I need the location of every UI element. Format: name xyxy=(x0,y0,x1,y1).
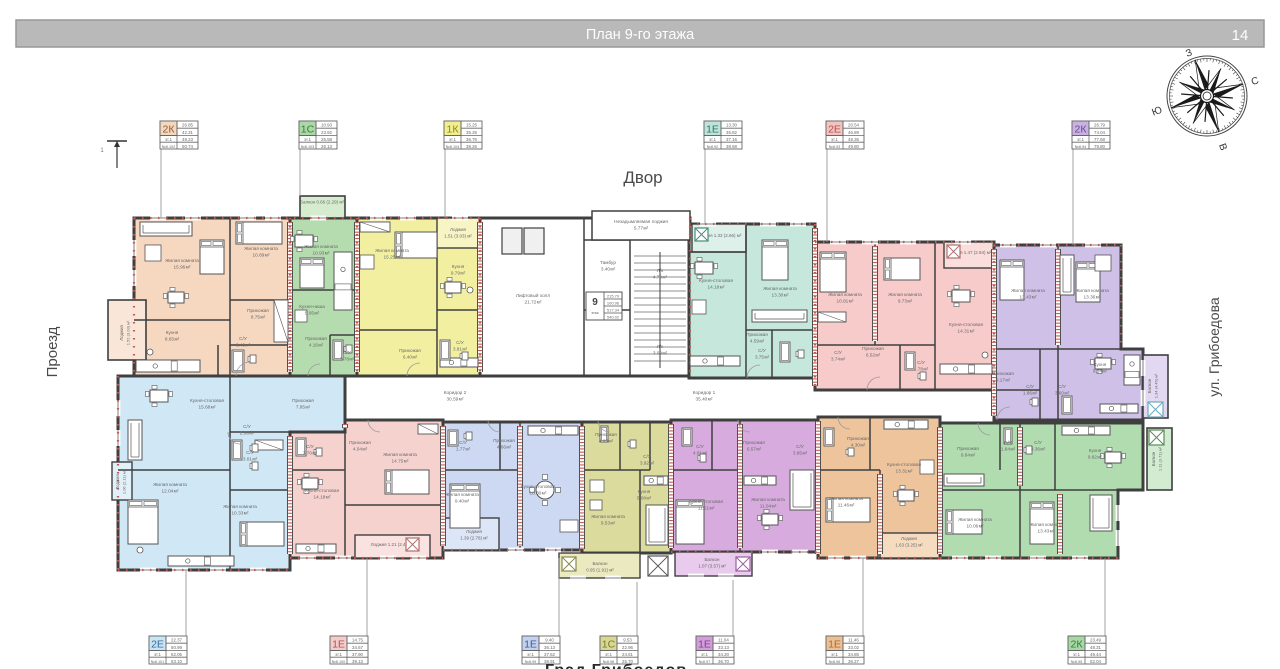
svg-text:Кухня-столовая: Кухня-столовая xyxy=(190,398,224,403)
svg-text:Л/к: Л/к xyxy=(657,344,664,349)
svg-text:Балкон: Балкон xyxy=(1147,378,1152,393)
svg-text:48.36: 48.36 xyxy=(848,137,860,142)
svg-text:22.37: 22.37 xyxy=(171,638,183,643)
svg-text:этаж: этаж xyxy=(591,311,599,315)
svg-text:Кухня: Кухня xyxy=(1094,362,1107,367)
svg-text:Лоджия: Лоджия xyxy=(466,529,483,534)
svg-text:9.17 м²: 9.17 м² xyxy=(996,378,1011,383)
svg-text:38.26: 38.26 xyxy=(466,144,478,149)
svg-text:23.49: 23.49 xyxy=(1090,638,1102,643)
svg-text:эт.1: эт.1 xyxy=(335,652,343,657)
svg-text:План 9-го этажа: План 9-го этажа xyxy=(586,27,695,43)
svg-text:49.44: 49.44 xyxy=(1090,652,1102,657)
svg-text:4.01 м²: 4.01 м² xyxy=(693,451,708,456)
svg-text:Балкон: Балкон xyxy=(1151,451,1156,466)
svg-text:Прихожая: Прихожая xyxy=(743,440,765,445)
svg-text:С/У: С/У xyxy=(459,440,467,445)
svg-text:эт.1: эт.1 xyxy=(605,652,613,657)
svg-text:Прихожая: Прихожая xyxy=(992,371,1014,376)
svg-text:11.04 м²: 11.04 м² xyxy=(760,504,777,509)
svg-text:№8.97: №8.97 xyxy=(699,660,710,664)
svg-text:Прихожая: Прихожая xyxy=(493,438,515,443)
svg-text:15.25: 15.25 xyxy=(466,123,478,128)
svg-text:1.39 (2.78) м²: 1.39 (2.78) м² xyxy=(460,536,488,541)
svg-text:20.54: 20.54 xyxy=(848,123,860,128)
svg-text:4.66 м²: 4.66 м² xyxy=(497,445,512,450)
svg-text:Прихожая: Прихожая xyxy=(247,308,269,313)
svg-text:Прихожая: Прихожая xyxy=(399,348,421,353)
svg-text:52.04: 52.04 xyxy=(1090,659,1102,664)
svg-text:50.99: 50.99 xyxy=(171,645,183,650)
svg-text:14.75: 14.75 xyxy=(352,638,364,643)
svg-text:9.40: 9.40 xyxy=(545,638,554,643)
svg-text:№8.103: №8.103 xyxy=(301,145,315,149)
svg-text:11.51 м²: 11.51 м² xyxy=(698,506,715,511)
svg-text:Жилая комната: Жилая комната xyxy=(244,246,278,251)
svg-text:Кухня-столовая: Кухня-столовая xyxy=(699,278,733,283)
svg-text:Жилая комната: Жилая комната xyxy=(763,286,797,291)
svg-text:Кухня: Кухня xyxy=(452,264,465,269)
svg-text:35.25: 35.25 xyxy=(466,130,478,135)
svg-text:77.68: 77.68 xyxy=(1094,137,1106,142)
svg-text:3.81 м²: 3.81 м² xyxy=(453,347,468,352)
svg-text:Коридор 1: Коридор 1 xyxy=(693,390,716,395)
svg-text:10.93: 10.93 xyxy=(321,123,333,128)
svg-text:Прихожая: Прихожая xyxy=(862,346,884,351)
svg-text:37.16: 37.16 xyxy=(726,137,738,142)
svg-text:215.70: 215.70 xyxy=(607,294,620,299)
svg-text:Жилая комната: Жилая комната xyxy=(375,248,409,253)
svg-text:С/У: С/У xyxy=(1058,384,1066,389)
svg-text:25.58: 25.58 xyxy=(321,137,333,142)
svg-text:4.70 м²: 4.70 м² xyxy=(653,275,668,280)
svg-text:Кухня: Кухня xyxy=(166,330,179,335)
svg-text:Кухня-столовая: Кухня-столовая xyxy=(305,488,339,493)
svg-text:Прихожая: Прихожая xyxy=(292,398,314,403)
svg-text:36.13: 36.13 xyxy=(544,645,556,650)
svg-text:Град Грибоедов: Град Грибоедов xyxy=(545,662,687,669)
svg-text:13.36 м²: 13.36 м² xyxy=(1084,295,1101,300)
svg-text:Жилая комната: Жилая комната xyxy=(383,452,417,457)
svg-text:3.46 м²: 3.46 м² xyxy=(236,343,251,348)
svg-text:13.30 м²: 13.30 м² xyxy=(772,293,789,298)
svg-text:9.53: 9.53 xyxy=(623,638,632,643)
svg-text:3.70 м²: 3.70 м² xyxy=(303,451,318,456)
svg-text:79.80: 79.80 xyxy=(1094,144,1106,149)
svg-text:2К: 2К xyxy=(163,124,176,136)
svg-text:14.31 м²: 14.31 м² xyxy=(958,329,975,334)
svg-text:№8.104: №8.104 xyxy=(446,145,460,149)
svg-text:Лоджия: Лоджия xyxy=(901,536,918,541)
svg-text:74.04: 74.04 xyxy=(1094,130,1106,135)
svg-text:10.89 м²: 10.89 м² xyxy=(253,253,270,258)
svg-text:С/У: С/У xyxy=(1034,440,1042,445)
svg-text:С/У: С/У xyxy=(917,360,925,365)
svg-text:С/У: С/У xyxy=(834,350,842,355)
svg-text:эт.1: эт.1 xyxy=(1077,137,1085,142)
svg-text:5.08 м²: 5.08 м² xyxy=(637,496,652,501)
svg-text:10.81 м²: 10.81 м² xyxy=(837,299,854,304)
svg-text:9.40 м²: 9.40 м² xyxy=(455,499,470,504)
svg-text:3.36 м²: 3.36 м² xyxy=(1031,447,1046,452)
svg-text:26.13: 26.13 xyxy=(321,144,333,149)
svg-text:3.92 м²: 3.92 м² xyxy=(640,461,655,466)
svg-text:39.13: 39.13 xyxy=(352,659,364,664)
svg-text:1.86 м²: 1.86 м² xyxy=(1023,391,1038,396)
svg-text:1Е: 1Е xyxy=(524,639,537,651)
svg-text:26.85: 26.85 xyxy=(182,123,194,128)
svg-text:№8.102: №8.102 xyxy=(162,145,176,149)
svg-text:9.14 м²: 9.14 м² xyxy=(1093,369,1108,374)
svg-text:Лоджия: Лоджия xyxy=(119,325,124,341)
svg-text:Жилая комната: Жилая комната xyxy=(958,517,992,522)
svg-text:Жилая комната: Жилая комната xyxy=(153,482,187,487)
svg-text:3.60 м²: 3.60 м² xyxy=(1055,391,1070,396)
svg-text:Лоджия: Лоджия xyxy=(450,227,467,232)
svg-text:48.31: 48.31 xyxy=(1090,645,1102,650)
svg-text:С/У: С/У xyxy=(1004,440,1012,445)
svg-text:6.57 м²: 6.57 м² xyxy=(747,447,762,452)
svg-text:50.74: 50.74 xyxy=(182,144,194,149)
svg-text:36.76: 36.76 xyxy=(466,137,478,142)
svg-text:34.67: 34.67 xyxy=(352,645,364,650)
svg-text:6.40 м²: 6.40 м² xyxy=(403,355,418,360)
svg-text:26.79: 26.79 xyxy=(1094,123,1106,128)
svg-text:эт.1: эт.1 xyxy=(154,652,162,657)
svg-text:46.89: 46.89 xyxy=(848,130,860,135)
svg-text:Жилая комната: Жилая комната xyxy=(165,258,199,263)
svg-text:3.78 м²: 3.78 м² xyxy=(340,357,355,362)
svg-text:1.06 (2.11) м²: 1.06 (2.11) м² xyxy=(122,469,127,494)
svg-text:эт.1: эт.1 xyxy=(701,652,709,657)
svg-text:Кухня-столовая: Кухня-столовая xyxy=(949,322,983,327)
svg-text:эт.1: эт.1 xyxy=(304,137,312,142)
svg-text:35.82: 35.82 xyxy=(726,130,738,135)
svg-text:С/У: С/У xyxy=(243,424,251,429)
svg-text:1С: 1С xyxy=(301,124,315,136)
svg-text:11.46: 11.46 xyxy=(848,638,859,643)
svg-text:Прихожая: Прихожая xyxy=(746,332,768,337)
svg-text:33.02: 33.02 xyxy=(848,645,860,650)
svg-text:3.95 м²: 3.95 м² xyxy=(793,451,808,456)
svg-text:Проезд: Проезд xyxy=(44,326,61,377)
svg-text:Жилая комната: Жилая комната xyxy=(1029,522,1063,527)
svg-text:эт.1: эт.1 xyxy=(165,137,173,142)
svg-text:Прихожая: Прихожая xyxy=(847,436,869,441)
svg-text:Лоджия: Лоджия xyxy=(115,474,120,490)
svg-text:2.08 м²: 2.08 м² xyxy=(240,431,255,436)
svg-text:517.34: 517.34 xyxy=(607,308,620,313)
svg-text:С/У: С/У xyxy=(246,450,254,455)
svg-text:№8.92: №8.92 xyxy=(707,145,718,149)
svg-text:Жилая комната: Жилая комната xyxy=(223,504,257,509)
svg-text:Жилая комната: Жилая комната xyxy=(751,497,785,502)
svg-text:1.84 м²: 1.84 м² xyxy=(1001,447,1016,452)
svg-text:540.02: 540.02 xyxy=(607,315,620,320)
svg-text:22.96: 22.96 xyxy=(622,645,634,650)
svg-text:Прихожая: Прихожая xyxy=(349,440,371,445)
svg-text:10.93 м²: 10.93 м² xyxy=(313,251,330,256)
svg-text:1Е: 1Е xyxy=(706,124,719,136)
svg-text:Жилая комната: Жилая комната xyxy=(445,492,479,497)
svg-text:С/У: С/У xyxy=(643,454,651,459)
svg-text:8.75 м²: 8.75 м² xyxy=(251,315,266,320)
svg-text:53.10: 53.10 xyxy=(171,659,183,664)
svg-text:2Е: 2Е xyxy=(151,639,164,651)
svg-text:1Е: 1Е xyxy=(332,639,345,651)
svg-text:№8.96: №8.96 xyxy=(829,660,840,664)
svg-text:34.20: 34.20 xyxy=(718,652,730,657)
svg-text:Балкон: Балкон xyxy=(704,557,720,562)
svg-text:3.74 м²: 3.74 м² xyxy=(831,357,846,362)
svg-text:14.18 м²: 14.18 м² xyxy=(708,285,725,290)
svg-text:33.13: 33.13 xyxy=(718,645,730,650)
svg-text:5.05 м²: 5.05 м² xyxy=(305,311,320,316)
svg-text:№8.100: №8.100 xyxy=(332,660,346,664)
svg-text:Кухня-ниша: Кухня-ниша xyxy=(299,304,325,309)
svg-text:23.92: 23.92 xyxy=(321,130,333,135)
svg-text:9.73 м²: 9.73 м² xyxy=(898,299,913,304)
svg-text:11.46 м²: 11.46 м² xyxy=(838,503,855,508)
svg-text:49.23: 49.23 xyxy=(182,137,194,142)
svg-text:6.52 м²: 6.52 м² xyxy=(866,353,881,358)
svg-text:1.51 (3.03) м²: 1.51 (3.03) м² xyxy=(444,234,472,239)
svg-text:3.01 м²: 3.01 м² xyxy=(243,457,258,462)
svg-text:4.16 м²: 4.16 м² xyxy=(309,343,324,348)
svg-text:13.30: 13.30 xyxy=(726,123,738,128)
svg-text:эт.1: эт.1 xyxy=(1073,652,1081,657)
svg-text:Л/к: Л/к xyxy=(657,268,664,273)
svg-text:Лифтовый холл: Лифтовый холл xyxy=(516,292,550,298)
svg-text:9.79 м²: 9.79 м² xyxy=(451,271,466,276)
svg-text:1С: 1С xyxy=(602,639,616,651)
svg-text:14: 14 xyxy=(1232,27,1249,44)
svg-text:4.59 м²: 4.59 м² xyxy=(750,339,765,344)
svg-text:18.30 м²: 18.30 м² xyxy=(530,491,547,496)
svg-text:21.72 м²: 21.72 м² xyxy=(525,300,542,305)
svg-text:36.70: 36.70 xyxy=(718,659,730,664)
svg-text:эт.1: эт.1 xyxy=(449,137,457,142)
svg-text:С/У: С/У xyxy=(456,340,464,345)
svg-text:49.80: 49.80 xyxy=(848,144,860,149)
svg-text:Кухня-столовая: Кухня-столовая xyxy=(887,462,921,467)
svg-text:С/У: С/У xyxy=(306,444,314,449)
svg-text:эт.1: эт.1 xyxy=(831,652,839,657)
svg-text:1.34 (4.46) м²: 1.34 (4.46) м² xyxy=(1154,373,1159,398)
svg-text:2К: 2К xyxy=(1071,639,1084,651)
svg-text:Балкон: Балкон xyxy=(592,561,608,566)
svg-text:эт.1: эт.1 xyxy=(831,137,839,142)
svg-text:37.52: 37.52 xyxy=(544,652,556,657)
svg-text:№8.99: №8.99 xyxy=(525,660,536,664)
svg-text:Двор: Двор xyxy=(623,168,662,187)
svg-text:№8.93: №8.93 xyxy=(829,145,840,149)
svg-text:С/У: С/У xyxy=(239,336,247,341)
svg-text:1.11 (3.71) м²: 1.11 (3.71) м² xyxy=(1158,446,1163,471)
svg-text:10.33 м²: 10.33 м² xyxy=(232,511,249,516)
svg-text:Жилая комната: Жилая комната xyxy=(888,292,922,297)
svg-text:Жилая комната: Жилая комната xyxy=(591,514,625,519)
svg-text:24.61: 24.61 xyxy=(622,652,634,657)
svg-text:Жилая комната: Жилая комната xyxy=(1011,288,1045,293)
svg-text:1.52 (3.03) м²: 1.52 (3.03) м² xyxy=(126,320,131,345)
svg-text:1.77 м²: 1.77 м² xyxy=(456,447,471,452)
svg-text:34.85: 34.85 xyxy=(848,652,860,657)
svg-text:Кухня-столовая: Кухня-столовая xyxy=(689,499,723,504)
svg-text:Незадымляемая лоджия: Незадымляемая лоджия xyxy=(614,219,668,224)
svg-text:100.96: 100.96 xyxy=(607,301,620,306)
svg-text:Коридор 2: Коридор 2 xyxy=(444,390,467,395)
svg-text:1К: 1К xyxy=(447,124,460,136)
svg-text:2Е: 2Е xyxy=(828,124,841,136)
svg-text:Прихожая: Прихожая xyxy=(595,432,617,437)
svg-text:С/У: С/У xyxy=(696,444,704,449)
svg-text:ул. Грибоедова: ул. Грибоедова xyxy=(1206,297,1222,397)
svg-text:13.43 м²: 13.43 м² xyxy=(1020,295,1037,300)
svg-text:Балкон 0.66 (2.29) м²: Балкон 0.66 (2.29) м² xyxy=(300,200,344,205)
svg-text:14.75 м²: 14.75 м² xyxy=(392,459,409,464)
svg-text:Тамбур: Тамбур xyxy=(600,260,616,265)
svg-text:3.75 м²: 3.75 м² xyxy=(755,355,770,360)
svg-text:4.03 м²: 4.03 м² xyxy=(599,439,614,444)
svg-text:9.84 м²: 9.84 м² xyxy=(961,453,976,458)
svg-text:Жилая комната: Жилая комната xyxy=(304,244,338,249)
svg-text:9.53 м²: 9.53 м² xyxy=(601,521,616,526)
svg-text:15.68 м²: 15.68 м² xyxy=(199,405,216,410)
svg-text:№8.94: №8.94 xyxy=(1075,145,1086,149)
svg-text:Жилая комната: Жилая комната xyxy=(1075,288,1109,293)
svg-text:С/У: С/У xyxy=(758,348,766,353)
svg-text:С/У: С/У xyxy=(343,350,351,355)
svg-text:3.09 м²: 3.09 м² xyxy=(653,351,668,356)
svg-text:1Е: 1Е xyxy=(828,639,841,651)
svg-text:Прихожая: Прихожая xyxy=(305,336,327,341)
svg-text:2К: 2К xyxy=(1075,124,1088,136)
svg-text:эт.1: эт.1 xyxy=(527,652,535,657)
svg-text:Жилая комната: Жилая комната xyxy=(829,496,863,501)
svg-text:52.06: 52.06 xyxy=(171,652,183,657)
svg-text:38.68: 38.68 xyxy=(726,144,738,149)
svg-text:1.78 м²: 1.78 м² xyxy=(914,367,929,372)
svg-text:5.77 м²: 5.77 м² xyxy=(634,226,649,231)
svg-text:37.90: 37.90 xyxy=(352,652,364,657)
svg-text:Кухня: Кухня xyxy=(638,489,651,494)
svg-text:1.63 (3.25) м²: 1.63 (3.25) м² xyxy=(895,543,923,548)
svg-text:35.40 м²: 35.40 м² xyxy=(696,397,713,402)
svg-text:12.04 м²: 12.04 м² xyxy=(162,489,179,494)
svg-text:11.04: 11.04 xyxy=(718,638,729,643)
svg-text:15.25 м²: 15.25 м² xyxy=(384,255,401,260)
svg-text:№8.101: №8.101 xyxy=(151,660,165,664)
svg-text:3.40 м²: 3.40 м² xyxy=(601,267,616,272)
svg-text:0.95 (1.91) м²: 0.95 (1.91) м² xyxy=(586,568,614,573)
svg-text:42.31: 42.31 xyxy=(182,130,194,135)
svg-text:Кухня: Кухня xyxy=(1089,448,1102,453)
svg-text:Жилая комната: Жилая комната xyxy=(828,292,862,297)
svg-text:8.65 м²: 8.65 м² xyxy=(165,337,180,342)
svg-text:С/У: С/У xyxy=(796,444,804,449)
svg-text:10.06 м²: 10.06 м² xyxy=(967,524,984,529)
svg-text:9.82 м²: 9.82 м² xyxy=(1088,455,1103,460)
svg-text:7.85 м²: 7.85 м² xyxy=(296,405,311,410)
svg-text:9: 9 xyxy=(592,297,598,308)
svg-text:4.04 м²: 4.04 м² xyxy=(353,447,368,452)
svg-text:эт.1: эт.1 xyxy=(709,137,717,142)
svg-text:1Е: 1Е xyxy=(698,639,711,651)
svg-text:13.31 м²: 13.31 м² xyxy=(896,469,913,474)
svg-text:С/У: С/У xyxy=(1026,384,1034,389)
svg-text:№8.95: №8.95 xyxy=(1071,660,1082,664)
svg-text:Прихожая: Прихожая xyxy=(957,446,979,451)
svg-text:Кухня-столовая: Кухня-столовая xyxy=(521,484,555,489)
svg-text:1.07 (3.57) м²: 1.07 (3.57) м² xyxy=(698,564,726,569)
svg-text:30.59 м²: 30.59 м² xyxy=(447,397,464,402)
svg-text:13.43 м²: 13.43 м² xyxy=(1038,529,1055,534)
svg-text:36.27: 36.27 xyxy=(848,659,860,664)
svg-text:4.30 м²: 4.30 м² xyxy=(851,443,866,448)
svg-text:14.18 м²: 14.18 м² xyxy=(314,495,331,500)
svg-text:15.96 м²: 15.96 м² xyxy=(174,265,191,270)
